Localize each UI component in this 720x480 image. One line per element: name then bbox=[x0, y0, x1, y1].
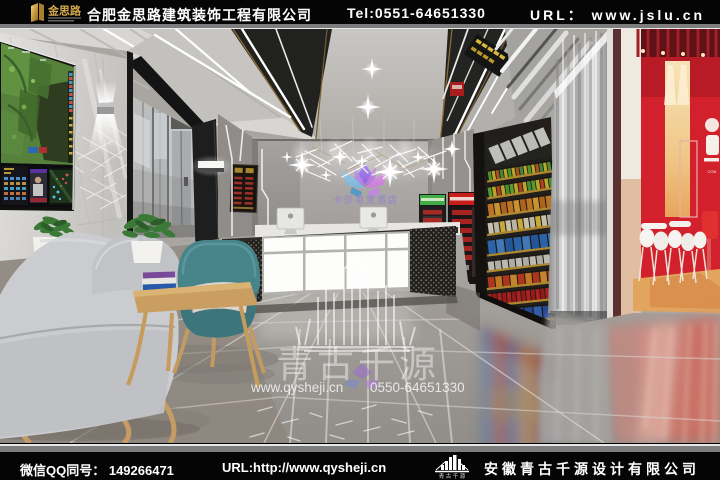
svg-text:青 古 千 源: 青 古 千 源 bbox=[439, 472, 466, 479]
svg-text:www.qysheji.cn: www.qysheji.cn bbox=[250, 380, 343, 395]
svg-text:卡莎电竞酒店: 卡莎电竞酒店 bbox=[333, 194, 399, 205]
svg-text:CON: CON bbox=[708, 169, 717, 174]
svg-text:0550-64651330: 0550-64651330 bbox=[370, 380, 465, 395]
svg-text:金思路: 金思路 bbox=[47, 4, 82, 18]
